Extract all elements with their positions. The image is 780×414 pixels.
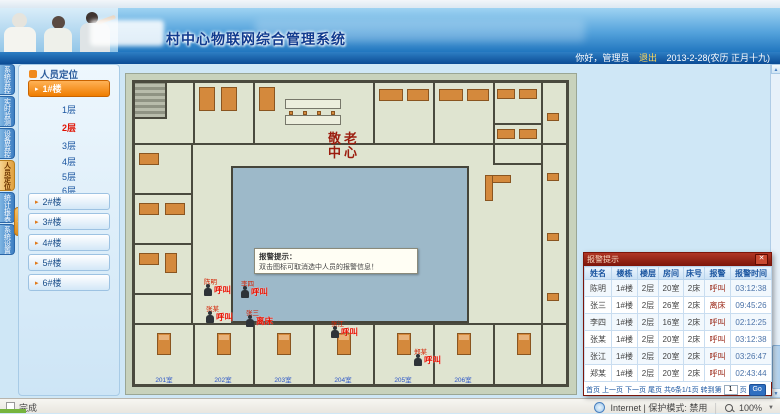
scroll-down-icon[interactable]: ▼ [771, 388, 780, 398]
divider: │ [713, 403, 719, 413]
tooltip-title: 报警提示： [259, 251, 413, 262]
tab-realtime-monitor[interactable]: 实时监测 [0, 96, 15, 127]
wall [433, 83, 435, 143]
close-icon[interactable]: ✕ [755, 254, 768, 265]
building-button-1[interactable]: ▸ 1#楼 [28, 80, 110, 97]
building-button-4[interactable]: ▸4#楼 [28, 234, 110, 251]
photo-person-body [44, 28, 72, 52]
person-icon [331, 326, 339, 338]
arrow-icon: ▸ [35, 279, 39, 287]
table-row[interactable]: 李四1#楼 2层16室 2床呼叫 02:12:25 [585, 314, 772, 331]
sidebar-panel: 人员定位 ▸ 1#楼 1层 2层 3层 4层 5层 6层 ▸2#楼 ▸3#楼 ▸… [18, 64, 120, 396]
building-button-2[interactable]: ▸2#楼 [28, 193, 110, 210]
wall [541, 83, 543, 384]
wall [135, 293, 191, 295]
goto-label: 转到第 [701, 385, 722, 395]
alarm-marker[interactable]: 陈明 呼叫 [204, 284, 231, 296]
furniture [467, 89, 489, 101]
room-label: 203室 [265, 374, 301, 384]
wall [135, 243, 191, 245]
app-banner: 村中心物联网综合管理系统 [0, 8, 780, 52]
person-icon [204, 284, 212, 296]
furniture [379, 89, 403, 101]
chair [289, 111, 293, 115]
globe-icon [594, 402, 605, 413]
tab-system-monitor[interactable]: 系统监控 [0, 64, 15, 95]
arrow-icon: ▸ [35, 259, 39, 267]
floor-link-4[interactable]: 4层 [19, 155, 119, 170]
wall [493, 323, 495, 384]
alarm-marker[interactable]: 张江 呼叫 [331, 326, 358, 338]
courtyard [231, 166, 469, 323]
person-icon [246, 315, 254, 327]
zone-text: Internet | 保护模式: 禁用 [611, 401, 708, 414]
building-button-6[interactable]: ▸6#楼 [28, 274, 110, 291]
alarm-marker[interactable]: 李四 呼叫 [241, 286, 268, 298]
bed-furniture [277, 333, 291, 355]
bed-furniture [517, 333, 531, 355]
arrow-icon: ▸ [35, 218, 39, 226]
furniture [259, 87, 275, 111]
building-button-3[interactable]: ▸3#楼 [28, 213, 110, 230]
alarm-marker[interactable]: 张某 呼叫 [206, 311, 233, 323]
arrow-icon: ▸ [35, 239, 39, 247]
furniture [139, 153, 159, 165]
table-header-row: 姓名 楼栋 楼层 房间 床号 报警 报警时间 [585, 267, 772, 280]
bed-furniture [497, 89, 515, 99]
alarm-marker[interactable]: 郑某 呼叫 [414, 354, 441, 366]
room-label: 202室 [205, 374, 241, 384]
cabinet [547, 233, 559, 241]
floor-link-1[interactable]: 1层 [19, 103, 119, 118]
meeting-table [285, 99, 341, 109]
room-label: 201室 [146, 374, 182, 384]
floor-link-2[interactable]: 2层 [19, 121, 119, 136]
bed-furniture [497, 129, 515, 139]
meeting-table [285, 115, 341, 125]
tooltip-text: 双击图标可取消选中人员的报警信息！ [259, 262, 413, 272]
last-page-link[interactable]: 尾页 [648, 385, 662, 395]
page-number-input[interactable] [724, 385, 738, 395]
user-bar: 你好，管理员 退出 2013-2-28(农历 正月十九) [0, 52, 780, 64]
table-row[interactable]: 张某1#楼 2层20室 2床呼叫 03:12:38 [585, 331, 772, 348]
wall [253, 83, 255, 143]
room-label: 205室 [385, 374, 421, 384]
scrollbar-thumb[interactable] [772, 345, 780, 392]
floor-plan: 敬老 中心 报警提示： 双击图标可取消选中人员的报警信息！ 陈明 呼叫 李四 呼… [125, 73, 577, 395]
furniture [439, 89, 463, 101]
zoom-caret-icon[interactable]: ▼ [768, 405, 774, 411]
sofa [485, 175, 493, 201]
table-row[interactable]: 张三1#楼 2层26室 2床离床 09:45:26 [585, 297, 772, 314]
greeting-text: 你好，管理员 [575, 53, 629, 63]
pagination-bar: 首页 上一页 下一页 尾页 共6条1/1页 转到第 页 Go [584, 382, 771, 397]
table-row[interactable]: 郑某1#楼 2层20室 2床呼叫 02:43:44 [585, 365, 772, 382]
room-label: 204室 [325, 374, 361, 384]
bed-furniture [457, 333, 471, 355]
person-icon [414, 354, 422, 366]
chair [317, 111, 321, 115]
stairwell [135, 83, 167, 119]
date-text: 2013-2-28(农历 正月十九) [666, 53, 770, 63]
first-page-link[interactable]: 首页 [586, 385, 600, 395]
logout-link[interactable]: 退出 [639, 53, 657, 63]
alarm-table: 姓名 楼栋 楼层 房间 床号 报警 报警时间 陈明1#楼 2层20室 2床呼叫 … [584, 266, 772, 382]
building-button-5[interactable]: ▸5#楼 [28, 254, 110, 271]
tab-statistics-report[interactable]: 统计报表 [0, 192, 15, 223]
censored-blur-patch [90, 20, 164, 46]
wall [373, 83, 375, 143]
bed-furniture [157, 333, 171, 355]
person-icon [206, 311, 214, 323]
wall [373, 323, 375, 384]
status-right: Internet | 保护模式: 禁用 │ 100% ▼ [594, 401, 774, 414]
arrow-icon: ▸ [35, 198, 39, 206]
wall [493, 163, 541, 165]
wall [193, 83, 195, 143]
alarm-marker[interactable]: 张三 离床 [246, 315, 273, 327]
furniture [165, 253, 177, 273]
room-label: 206室 [445, 374, 481, 384]
next-page-link[interactable]: 下一页 [625, 385, 646, 395]
floor-link-5[interactable]: 5层 [19, 170, 119, 185]
app-title: 村中心物联网综合管理系统 [166, 29, 346, 49]
bed-furniture [519, 89, 537, 99]
table-row[interactable]: 张江1#楼 2层20室 2床呼叫 03:26:47 [585, 348, 772, 365]
alarm-popup: 报警提示 ✕ 姓名 楼栋 楼层 房间 床号 报警 报警时间 陈明1#楼 2层20… [583, 252, 772, 396]
panel-header: 人员定位 [29, 68, 78, 80]
browser-status-bar: 完成 Internet | 保护模式: 禁用 │ 100% ▼ [0, 398, 780, 413]
panel-title: 人员定位 [40, 67, 78, 81]
wall [313, 323, 315, 384]
zoom-level[interactable]: 100% [739, 403, 762, 413]
chair [331, 111, 335, 115]
furniture [221, 87, 237, 111]
photo-person-body [4, 27, 36, 52]
arrow-icon: ▸ [35, 85, 39, 93]
scroll-up-icon[interactable]: ▲ [771, 64, 780, 74]
chair [303, 111, 307, 115]
photo-person-head [12, 13, 27, 28]
furniture [199, 87, 215, 111]
tab-personnel-location[interactable]: 人员定位 [0, 160, 15, 191]
zoom-magnifier-icon [725, 404, 733, 412]
furniture [139, 203, 159, 215]
wall [253, 323, 255, 384]
page-unit-label: 页 [740, 385, 747, 395]
building-caption: 敬老 中心 [328, 133, 360, 161]
personnel-locate-icon [29, 70, 37, 78]
alarm-tooltip: 报警提示： 双击图标可取消选中人员的报警信息！ [254, 248, 418, 274]
furniture [165, 203, 185, 215]
bed-furniture [519, 129, 537, 139]
cabinet [547, 113, 559, 121]
taskbar-fragment [0, 409, 26, 413]
popup-title: 报警提示 [587, 253, 619, 266]
building-outline: 敬老 中心 [132, 80, 569, 387]
wall [135, 193, 191, 195]
table-row[interactable]: 陈明1#楼 2层20室 2床呼叫 03:12:38 [585, 280, 772, 297]
furniture [407, 89, 429, 101]
person-icon [241, 286, 249, 298]
prev-page-link[interactable]: 上一页 [602, 385, 623, 395]
wall [135, 323, 566, 325]
tab-system-settings[interactable]: 系统设置 [0, 224, 15, 255]
bed-furniture [217, 333, 231, 355]
bed-furniture [397, 333, 411, 355]
furniture [139, 253, 159, 265]
cabinet [547, 293, 559, 301]
popup-titlebar: 报警提示 ✕ [584, 253, 771, 266]
wall [493, 123, 541, 125]
cabinet [547, 173, 559, 181]
wall [191, 145, 193, 323]
go-button[interactable]: Go [749, 384, 766, 396]
page-summary: 共6条1/1页 [664, 385, 699, 395]
floor-link-3[interactable]: 3层 [19, 139, 119, 154]
tab-device-monitor[interactable]: 设备监控 [0, 128, 15, 159]
wall [193, 323, 195, 384]
